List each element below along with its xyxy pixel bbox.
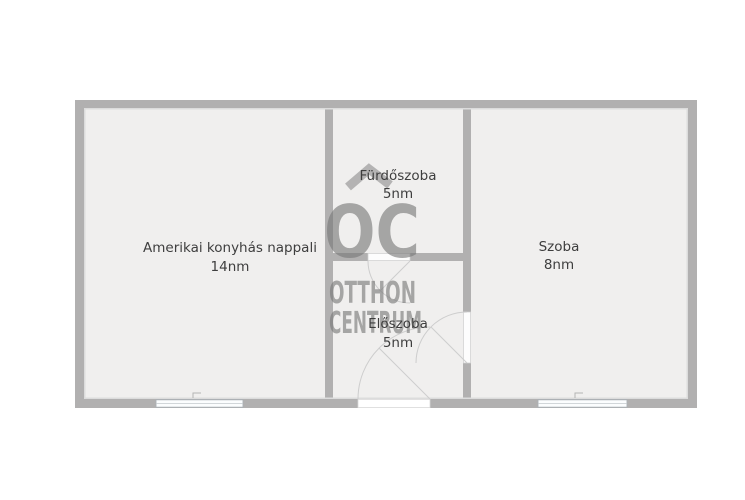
outer-wall-left (75, 100, 84, 408)
szoba-area: 8nm (544, 257, 574, 273)
entrance-door-opening (358, 399, 430, 407)
outer-wall-right (688, 100, 697, 408)
wall-middle-szoba-upper (463, 109, 471, 312)
floorplan-page: OC OTTHON CENTRUM Amerikai konyhás nappa… (0, 0, 745, 500)
living-room-area: 14nm (211, 259, 250, 275)
living-room-name: Amerikai konyhás nappali (143, 240, 317, 256)
wall-middle-szoba-lower (463, 363, 471, 399)
hallway-name: Előszoba (368, 316, 428, 332)
bathroom-name: Fürdőszoba (360, 168, 437, 184)
watermark-logo-text: OC (324, 190, 420, 274)
floorplan-drawing: OC OTTHON CENTRUM Amerikai konyhás nappa… (0, 0, 745, 500)
outer-wall-top (75, 100, 697, 109)
szoba-name: Szoba (539, 239, 580, 255)
bathroom-area: 5nm (383, 186, 413, 202)
szoba-door-opening (463, 312, 470, 363)
hallway-area: 5nm (383, 335, 413, 351)
